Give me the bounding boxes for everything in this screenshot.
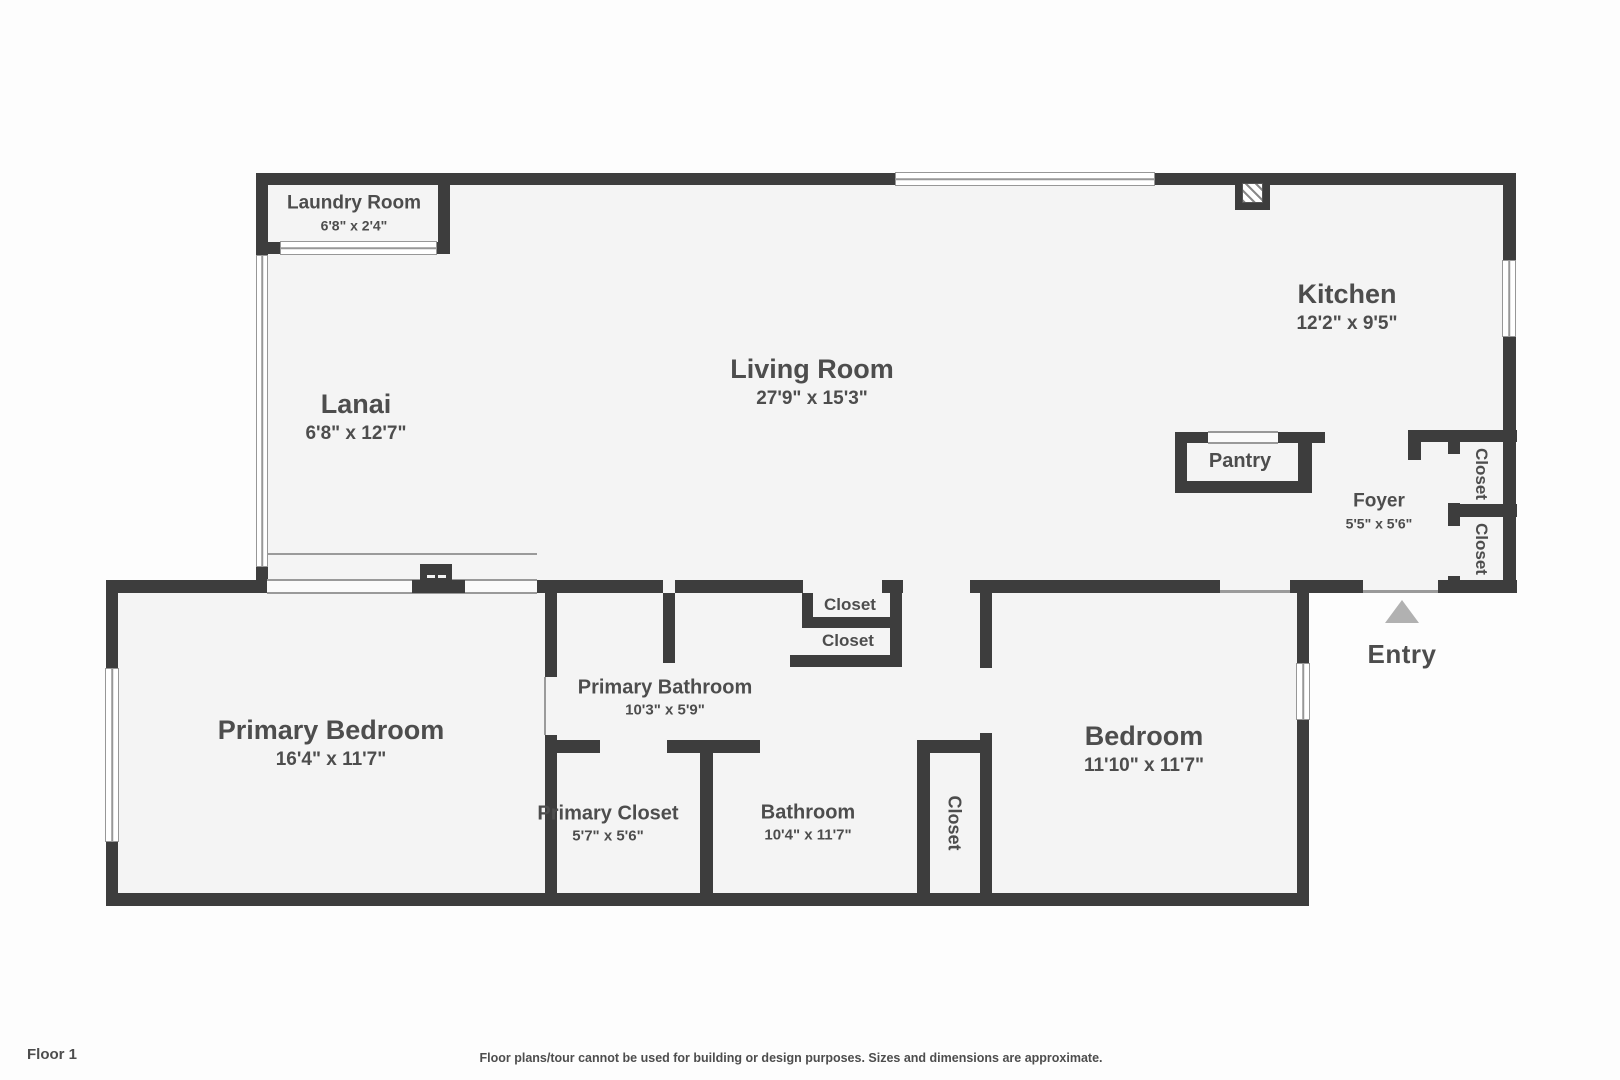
wall-segment [1297, 580, 1309, 663]
room-dims: 27'9" x 15'3" [730, 387, 894, 412]
wall-segment [1438, 580, 1517, 593]
wall-segment [667, 740, 760, 753]
room-label-living-room: Living Room 27'9" x 15'3" [730, 352, 894, 412]
window [895, 172, 1155, 186]
room-name: Closet [1470, 523, 1492, 575]
room-dims: 5'7" x 5'6" [537, 826, 678, 846]
room-name: Entry [1368, 638, 1437, 672]
room-dims: 6'8" x 2'4" [287, 216, 421, 234]
window [256, 255, 268, 567]
door-threshold-line [1220, 590, 1290, 593]
room-label-pantry: Pantry [1209, 448, 1271, 474]
room-name: Pantry [1209, 448, 1271, 474]
floor-label: Floor 1 [27, 1046, 77, 1063]
wall-segment [437, 242, 450, 254]
wall-segment [537, 580, 663, 593]
wall-segment [802, 617, 902, 628]
room-label-laundry: Laundry Room 6'8" x 2'4" [287, 192, 421, 235]
room-dims: 12'2" x 9'5" [1296, 312, 1397, 337]
wall-segment [700, 740, 713, 906]
room-name: Closet [824, 594, 876, 616]
wall-segment [106, 580, 118, 668]
door-opening [1208, 431, 1278, 444]
wall-segment [1408, 430, 1421, 460]
room-label-hall-closet-lower: Closet [822, 630, 874, 652]
room-label-bathroom: Bathroom 10'4" x 11'7" [761, 799, 855, 845]
room-name: Lanai [305, 387, 406, 422]
room-name: Living Room [730, 352, 894, 387]
room-label-foyer: Foyer 5'5" x 5'6" [1346, 490, 1413, 533]
wall-segment [545, 593, 557, 677]
room-name: Foyer [1346, 490, 1413, 515]
wall-fixture [420, 564, 452, 581]
wall-segment [1503, 337, 1516, 593]
wall-segment [1175, 432, 1208, 443]
room-name: Closet [942, 795, 965, 850]
wall-segment [970, 580, 1220, 593]
room-name: Primary Bathroom [578, 674, 753, 700]
room-dims: 10'3" x 5'9" [578, 700, 753, 720]
wall-segment [1155, 173, 1503, 185]
entry-label: Entry [1368, 638, 1437, 672]
room-label-hall-closet-upper: Closet [824, 594, 876, 616]
room-name: Bathroom [761, 799, 855, 825]
wall-segment [258, 173, 895, 185]
wall-segment [890, 580, 902, 667]
room-label-primary-closet: Primary Closet 5'7" x 5'6" [537, 800, 678, 846]
room-name: Bedroom [1084, 719, 1204, 754]
wall-segment [1448, 442, 1460, 454]
wall-segment [256, 242, 280, 254]
disclaimer-text: Floor plans/tour cannot be used for buil… [479, 1051, 1102, 1065]
wall-segment [980, 733, 992, 906]
wall-segment [1298, 432, 1312, 493]
room-name: Kitchen [1296, 277, 1397, 312]
wall-segment [675, 580, 803, 593]
room-dims: 6'8" x 12'7" [305, 422, 406, 447]
room-dims: 11'10" x 11'7" [1084, 754, 1204, 779]
wall-segment [980, 593, 992, 668]
wall-segment [545, 740, 600, 753]
hatched-fixture-icon [1242, 183, 1263, 203]
wall-segment [663, 593, 675, 663]
room-dims: 10'4" x 11'7" [761, 825, 855, 845]
room-label-kitchen: Kitchen 12'2" x 9'5" [1296, 277, 1397, 337]
wall-segment [106, 580, 267, 593]
room-dims: 5'5" x 5'6" [1346, 514, 1413, 532]
room-label-bedroom-closet: Closet [942, 795, 965, 850]
door-jamb-line [544, 677, 546, 735]
room-label-lanai: Lanai 6'8" x 12'7" [305, 387, 406, 447]
room-label-primary-bathroom: Primary Bathroom 10'3" x 5'9" [578, 674, 753, 720]
room-label-foyer-closet-lower: Closet [1470, 523, 1492, 575]
room-name: Closet [1470, 448, 1492, 500]
window [280, 241, 437, 255]
room-name: Primary Bedroom [218, 713, 445, 748]
room-name: Laundry Room [287, 192, 421, 217]
wall-segment [1448, 504, 1517, 517]
fixture-dash [427, 575, 435, 578]
room-name: Primary Closet [537, 800, 678, 826]
room-name: Closet [822, 630, 874, 652]
entry-threshold-line [1363, 590, 1438, 593]
fixture-dash [438, 575, 446, 578]
wall-segment [917, 740, 930, 906]
wall-segment [1408, 430, 1517, 442]
wall-segment [1503, 173, 1516, 260]
window [1502, 260, 1516, 337]
entry-arrow-icon [1385, 600, 1419, 623]
room-label-foyer-closet-upper: Closet [1470, 448, 1492, 500]
wall-segment [1175, 481, 1312, 493]
room-label-bedroom: Bedroom 11'10" x 11'7" [1084, 719, 1204, 779]
room-dims: 16'4" x 11'7" [218, 748, 445, 773]
room-label-primary-bedroom: Primary Bedroom 16'4" x 11'7" [218, 713, 445, 773]
sliding-door-opening [267, 579, 537, 594]
wall-segment [790, 655, 902, 667]
lanai-edge-line [268, 553, 537, 555]
wall-fixture [412, 580, 465, 593]
window [105, 668, 119, 842]
floorplan: Laundry Room 6'8" x 2'4" Lanai 6'8" x 12… [0, 0, 1620, 1080]
window [1296, 663, 1310, 720]
wall-segment [1297, 720, 1309, 906]
